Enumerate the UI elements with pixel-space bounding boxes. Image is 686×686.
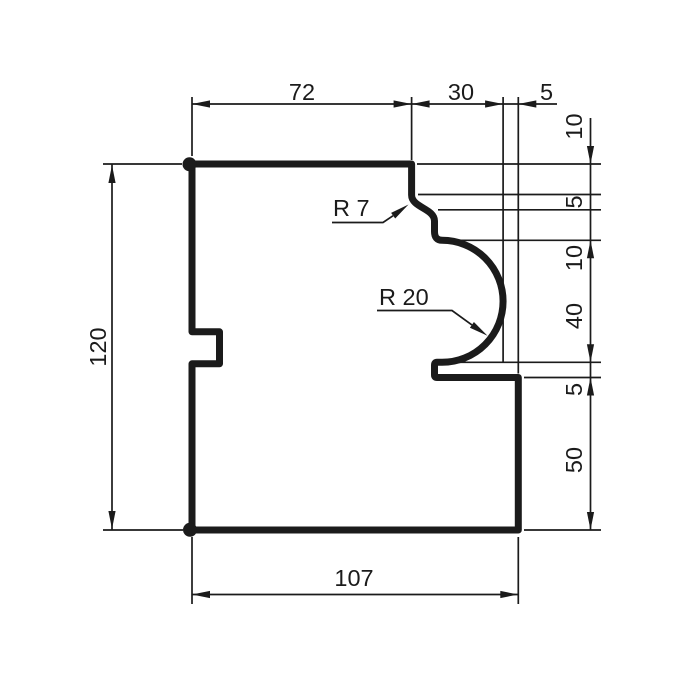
arrowhead-right-y120-down xyxy=(587,512,594,530)
arrowhead-bottom-left-107 xyxy=(192,591,210,598)
leader-line-r20 xyxy=(377,311,472,325)
dim-label-107: 107 xyxy=(334,565,373,591)
arrowhead-leader-r7 xyxy=(391,205,408,219)
dim-label-10-upper: 10 xyxy=(561,113,587,139)
arrowhead-top-5-outside xyxy=(518,100,536,107)
technical-drawing-page: 72 30 5 10 5 10 40 5 50 120 107 R 7 R 20 xyxy=(0,0,686,686)
arrowhead-right-y25-up xyxy=(587,240,594,258)
dim-label-40: 40 xyxy=(561,303,587,329)
dim-label-120: 120 xyxy=(85,327,111,366)
corner-node-dot-bottom-left xyxy=(183,523,197,537)
arrowhead-top-left-72 xyxy=(192,100,210,107)
arrowhead-top-right-30 xyxy=(485,100,503,107)
dim-label-10-lower: 10 xyxy=(561,245,587,271)
arrowhead-top-left-30 xyxy=(412,100,430,107)
dim-label-30: 30 xyxy=(448,79,474,105)
dim-label-5-top: 5 xyxy=(540,79,553,105)
arrowhead-right-y65-down xyxy=(587,344,594,362)
corner-node-dot-top-left xyxy=(183,157,197,171)
dim-label-72: 72 xyxy=(289,79,315,105)
arrowhead-leader-r20 xyxy=(470,322,488,336)
arrowhead-right-y0-down xyxy=(587,146,594,164)
radius-label-r20: R 20 xyxy=(379,284,429,310)
arrowhead-left-120-down xyxy=(108,511,115,529)
arrowhead-top-right-72 xyxy=(394,100,412,107)
arrowhead-bottom-right-107 xyxy=(500,591,518,598)
technical-drawing: 72 30 5 10 5 10 40 5 50 120 107 R 7 R 20 xyxy=(0,0,686,686)
dim-label-5-right-upper: 5 xyxy=(561,195,587,208)
dim-label-5-right-lower: 5 xyxy=(561,383,587,396)
radius-label-r7: R 7 xyxy=(333,195,370,221)
arrowhead-right-y70-up xyxy=(587,378,594,396)
dim-label-50: 50 xyxy=(561,447,587,473)
arrowhead-left-120-up xyxy=(108,165,115,183)
